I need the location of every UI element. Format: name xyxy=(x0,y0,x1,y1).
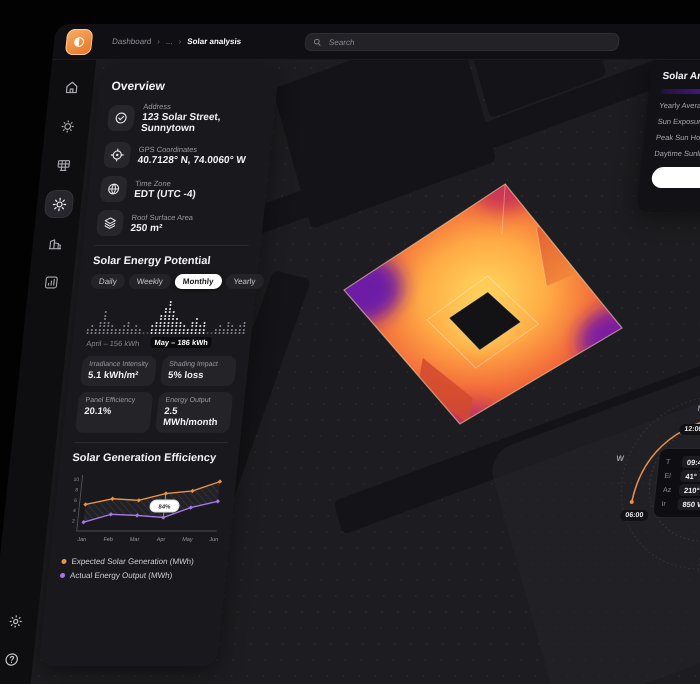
tab-daily[interactable]: Daily xyxy=(90,274,125,289)
stat-irradiance: Irradiance Intensity 5.1 kWh/m² xyxy=(80,356,157,386)
info-value: 850 W/m² xyxy=(677,498,700,510)
buildings-icon xyxy=(47,236,64,251)
info-value: 210° xyxy=(678,484,700,496)
svg-text:Apr: Apr xyxy=(156,537,165,543)
stat-energy-output: Energy Output 2.5 MWh/month xyxy=(155,392,233,433)
sidebar-item-analytics[interactable] xyxy=(37,269,66,295)
stat-label: Irradiance Intensity xyxy=(89,361,150,368)
chevron-right-icon: › xyxy=(157,37,161,46)
stat-label: Panel Efficiency xyxy=(85,397,146,404)
info-label: El xyxy=(664,473,681,480)
svg-text:6: 6 xyxy=(74,498,78,504)
layers-icon xyxy=(96,210,125,236)
svg-text:10: 10 xyxy=(73,477,79,483)
legend-dot-purple xyxy=(60,573,66,578)
row-peak-sun-hours: Peak Sun Hours xyxy=(656,133,700,142)
stat-value: 5% loss xyxy=(167,370,228,381)
help-button[interactable] xyxy=(0,646,26,672)
info-irradiance: Ir 850 W/m² xyxy=(661,498,700,510)
field-value: EDT (UTC -4) xyxy=(134,189,197,200)
info-azimuth: Az 210° xyxy=(662,484,700,496)
efficiency-line-chart: 246810JanFebMarAprMayJun84% xyxy=(63,471,225,547)
row-sun-exposure: Sun Exposure xyxy=(657,117,700,126)
sidebar-item-sun-active[interactable] xyxy=(45,191,74,217)
field-value: 40.7128° N, 74.0060° W xyxy=(137,155,246,166)
sun-info-panel: T 09:43AM El 41° Az 210° Ir 850 W/m² xyxy=(652,448,700,518)
efficiency-title: Solar Generation Efficiency xyxy=(72,452,227,464)
info-label: Ir xyxy=(661,501,678,508)
map-viewport[interactable]: Overview Address 123 Solar Street, Sunny… xyxy=(31,60,700,684)
sidebar-item-home[interactable] xyxy=(57,74,86,100)
tab-weekly[interactable]: Weekly xyxy=(128,274,172,289)
svg-text:Feb: Feb xyxy=(103,537,113,543)
divider xyxy=(95,245,249,246)
solar-analysis-title: Solar Analysis xyxy=(662,71,700,82)
target-icon xyxy=(103,142,132,168)
energy-gear-icon xyxy=(59,119,76,134)
search-bar[interactable] xyxy=(304,33,620,51)
svg-text:Jan: Jan xyxy=(77,537,86,543)
svg-text:4: 4 xyxy=(73,508,77,514)
search-input[interactable] xyxy=(327,37,612,48)
home-icon xyxy=(63,80,80,95)
field-label: Roof Surface Area xyxy=(131,213,193,222)
info-label: Az xyxy=(663,487,680,494)
legend-label: Actual Energy Output (MWh) xyxy=(70,571,173,580)
svg-text:2: 2 xyxy=(72,519,76,525)
gear-icon xyxy=(7,614,24,629)
tab-monthly[interactable]: Monthly xyxy=(174,274,222,289)
check-circle-icon xyxy=(107,105,136,131)
building-3d-heatmap[interactable] xyxy=(319,172,646,432)
search-icon xyxy=(313,38,323,47)
legend-dot-orange xyxy=(61,559,67,564)
chart-legend: Expected Solar Generation (MWh) Actual E… xyxy=(60,557,216,580)
bar-chart-icon xyxy=(43,275,60,290)
dot-chart-labels: April – 156 kWh May – 186 kWh xyxy=(84,338,239,350)
stat-panel-efficiency: Panel Efficiency 20.1% xyxy=(75,392,153,433)
sidebar-item-solar-panel[interactable] xyxy=(49,152,78,178)
field-label: GPS Coordinates xyxy=(138,145,247,154)
period-tabs: Daily Weekly Monthly Yearly xyxy=(90,274,246,289)
potential-title: Solar Energy Potential xyxy=(92,255,247,267)
question-icon xyxy=(3,652,20,667)
stat-shading: Shading Impact 5% loss xyxy=(160,356,237,386)
field-roof-area: Roof Surface Area 250 m² xyxy=(96,210,253,236)
may-summary: May – 186 kWh xyxy=(150,337,213,348)
field-address: Address 123 Solar Street, Sunnytown xyxy=(106,102,263,134)
stat-label: Shading Impact xyxy=(169,361,230,368)
info-label: T xyxy=(666,459,683,466)
info-elevation: El 41° xyxy=(664,470,700,482)
field-gps: GPS Coordinates 40.7128° N, 74.0060° W xyxy=(103,142,260,168)
svg-text:8: 8 xyxy=(75,487,79,493)
row-yearly-average: Yearly Average xyxy=(659,101,700,110)
field-value: 123 Solar Street, Sunnytown xyxy=(140,112,262,134)
cta-button[interactable] xyxy=(651,167,700,188)
tab-yearly[interactable]: Yearly xyxy=(225,274,265,289)
info-value: 41° xyxy=(680,470,700,482)
field-value: 250 m² xyxy=(130,223,192,234)
globe-icon xyxy=(99,176,128,202)
svg-text:May: May xyxy=(182,537,193,543)
sidebar-item-energy[interactable] xyxy=(53,113,82,139)
compass-west-label: W xyxy=(616,454,625,463)
svg-text:Mar: Mar xyxy=(130,537,140,543)
time-pill-noon: 12:00 xyxy=(679,424,700,435)
divider xyxy=(74,442,228,443)
app-canvas: Dashboard › ... › Solar analysis xyxy=(0,24,700,684)
sidebar-item-buildings[interactable] xyxy=(41,230,70,256)
svg-text:84%: 84% xyxy=(158,505,171,511)
info-value: 09:43AM xyxy=(681,456,700,468)
overview-title: Overview xyxy=(111,79,266,93)
breadcrumb-dashboard[interactable]: Dashboard xyxy=(112,37,152,46)
legend-expected: Expected Solar Generation (MWh) xyxy=(61,557,216,566)
logo-contrast-icon xyxy=(71,35,86,49)
sun-icon xyxy=(51,197,68,212)
settings-button[interactable] xyxy=(1,608,30,634)
dot-matrix-chart xyxy=(86,298,242,334)
chevron-right-icon: › xyxy=(178,37,182,46)
legend-actual: Actual Energy Output (MWh) xyxy=(60,571,215,580)
field-label: Address xyxy=(143,102,264,111)
svg-text:Jun: Jun xyxy=(209,537,218,543)
info-time: T 09:43AM xyxy=(665,456,700,468)
field-timezone: Time Zone EDT (UTC -4) xyxy=(99,176,256,202)
top-bar: Dashboard › ... › Solar analysis xyxy=(52,24,700,60)
stat-value: 5.1 kWh/m² xyxy=(87,370,148,381)
breadcrumb: Dashboard › ... › Solar analysis xyxy=(112,37,242,46)
gradient-progress-bar xyxy=(661,89,700,94)
time-pill-morning: 06:00 xyxy=(620,510,649,521)
field-label: Time Zone xyxy=(135,179,198,188)
stat-value: 2.5 MWh/month xyxy=(163,406,225,428)
breadcrumb-current: Solar analysis xyxy=(187,37,242,46)
legend-label: Expected Solar Generation (MWh) xyxy=(71,557,194,566)
stat-label: Energy Output xyxy=(165,397,226,404)
breadcrumb-ellipsis[interactable]: ... xyxy=(166,37,174,46)
april-summary: April – 156 kWh xyxy=(86,339,140,348)
solar-panel-icon xyxy=(55,158,72,173)
app-logo[interactable] xyxy=(65,29,94,55)
stat-value: 20.1% xyxy=(84,406,145,417)
row-daytime-sunlight: Daytime Sunlight xyxy=(654,149,700,158)
stat-cards: Irradiance Intensity 5.1 kWh/m² Shading … xyxy=(75,356,237,433)
